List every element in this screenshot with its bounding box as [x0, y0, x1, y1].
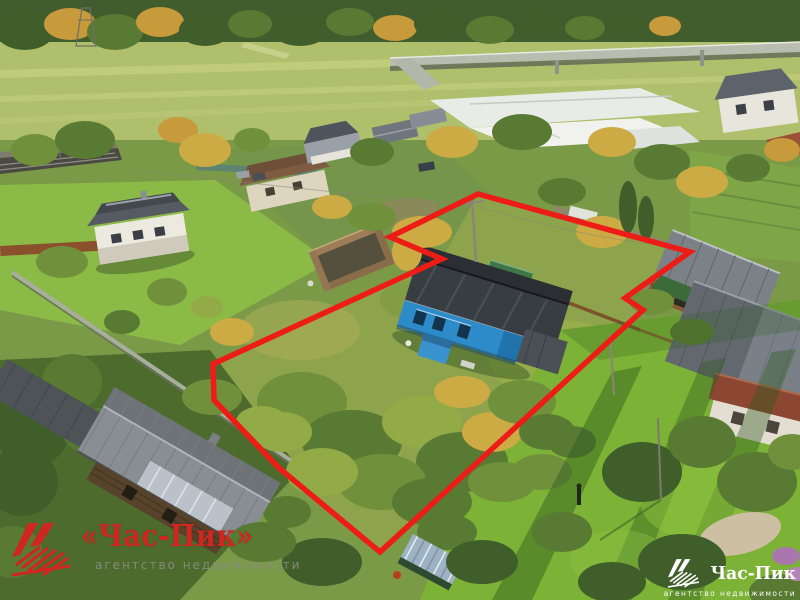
aerial-photo-scene	[0, 0, 800, 600]
red-barrel	[393, 571, 401, 579]
purple-flowers	[772, 547, 800, 565]
person-figure	[577, 488, 581, 505]
real-estate-aerial-photo: «Час-Пик» агентство недвижимости Час-Пик…	[0, 0, 800, 600]
